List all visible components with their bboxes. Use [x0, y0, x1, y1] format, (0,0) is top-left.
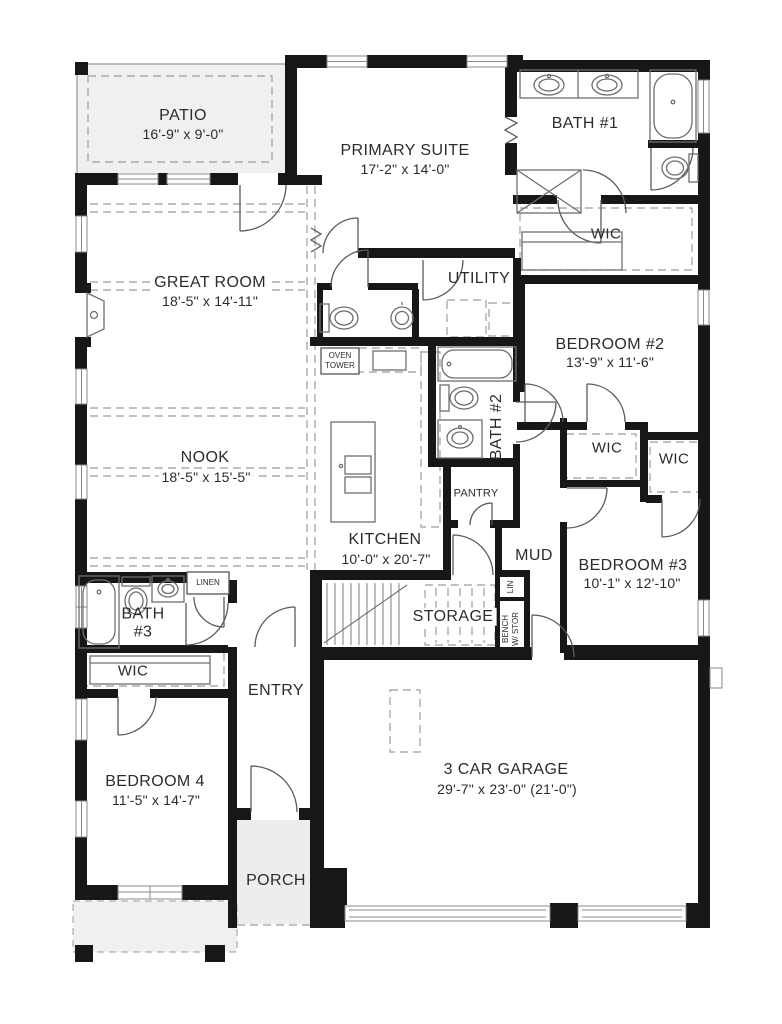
room-label-porch: PORCH [246, 872, 306, 890]
shower-door-swing [583, 170, 626, 213]
bath1-wc-door-swing [651, 148, 693, 190]
fireplace-icon [87, 293, 104, 337]
walls [75, 55, 710, 962]
kitchen-mud-door-swing [453, 535, 493, 575]
room-label-entry: ENTRY [248, 682, 304, 700]
wic-bedroom3-door-swing [662, 499, 700, 537]
room-label-bath-1: BATH #1 [552, 115, 619, 133]
room-label-wic-bedroom-4: WIC [118, 662, 148, 679]
bath3-door-swing [186, 603, 228, 645]
kitchen-range-icon [373, 351, 406, 370]
wic-bedroom4-door-swing [118, 697, 156, 735]
bath1-tub-icon [650, 70, 696, 142]
floor-plan: PATIO 16'-9" x 9'-0" PRIMARY SUITE 17'-2… [0, 0, 782, 1024]
room-label-wic-bedroom-3: WIC [659, 450, 689, 467]
bath1-shower-icon [517, 170, 581, 213]
room-label-storage: STORAGE [410, 608, 497, 626]
room-label-mud: MUD [515, 547, 553, 565]
bath2-sink-icon [438, 420, 482, 458]
room-label-garage: 3 CAR GARAGE [444, 761, 569, 779]
room-label-bedroom-3: BEDROOM #3 [579, 557, 688, 575]
room-dims-garage: 29'-7" x 23'-0" (21'-0") [437, 781, 577, 797]
hall-opening-fold [311, 228, 321, 252]
linen-door-swing [194, 597, 224, 627]
pantry-door-swing [470, 503, 492, 525]
bath2-tub-icon [438, 347, 516, 381]
bath1-entry-fold [505, 117, 517, 144]
bedroom3-door-swing [567, 488, 607, 528]
room-label-bedroom-2: BEDROOM #2 [556, 336, 665, 354]
room-label-oven-tower: OVEN TOWER [325, 351, 355, 371]
room-label-wic-bedroom-2: WIC [592, 439, 622, 456]
primary-door-swing [323, 218, 358, 253]
room-label-nook: NOOK [178, 449, 233, 467]
room-label-linen: LINEN [196, 578, 220, 588]
front-door-swing [251, 766, 297, 812]
wc-toilet-icon [320, 304, 358, 332]
room-label-primary-suite: PRIMARY SUITE [340, 142, 469, 160]
room-label-utility: UTILITY [448, 270, 510, 288]
room-label-bath-3: BATH #3 [121, 606, 164, 643]
room-label-great-room: GREAT ROOM [151, 274, 269, 292]
stairs-icon [324, 583, 407, 645]
bath1-toilet-icon [662, 154, 698, 182]
room-dims-bedroom-2: 13'-9" x 11'-6" [566, 354, 654, 370]
wic-bedroom2-door-swing [587, 384, 625, 422]
room-label-primary-wic: WIC [591, 225, 621, 242]
kitchen-island-icon [331, 422, 375, 522]
room-dims-bedroom-3: 10'-1" x 12'-10" [583, 575, 680, 591]
room-dims-patio: 16'-9" x 9'-0" [142, 126, 223, 142]
bath2-toilet-icon [440, 385, 478, 411]
room-dims-primary-suite: 17'-2" x 14'-0" [360, 161, 449, 177]
room-label-bedroom-4: BEDROOM 4 [105, 773, 205, 791]
wic4-shelf-icon [90, 656, 210, 684]
wc-pedestal-sink-icon [391, 302, 413, 329]
patio-door-swing [240, 185, 286, 231]
room-label-bath-2: BATH #2 [488, 394, 506, 461]
room-label-lin: LIN [506, 581, 516, 593]
bath1-vanity-sinks-icon [520, 70, 638, 98]
room-label-pantry: PANTRY [454, 488, 499, 501]
room-label-bench: BENCH W/ STOR [501, 612, 521, 646]
garage-utility-box [710, 668, 722, 688]
room-dims-bedroom-4: 11'-5" x 14'-7" [112, 792, 200, 808]
room-dims-nook: 18'-5" x 15'-5" [158, 469, 253, 485]
room-label-patio: PATIO [159, 107, 207, 125]
entry-hall-door-swing [255, 607, 295, 647]
window-glyphs-vertical [76, 80, 709, 837]
floor-fills [73, 64, 310, 952]
garage-door-glyphs [345, 906, 686, 921]
room-dims-great-room: 18'-5" x 14'-11" [159, 293, 261, 309]
room-label-kitchen: KITCHEN [345, 531, 424, 549]
room-dims-kitchen: 10'-0" x 20'-7" [338, 551, 433, 567]
bedroom2-door-swing [525, 384, 563, 422]
